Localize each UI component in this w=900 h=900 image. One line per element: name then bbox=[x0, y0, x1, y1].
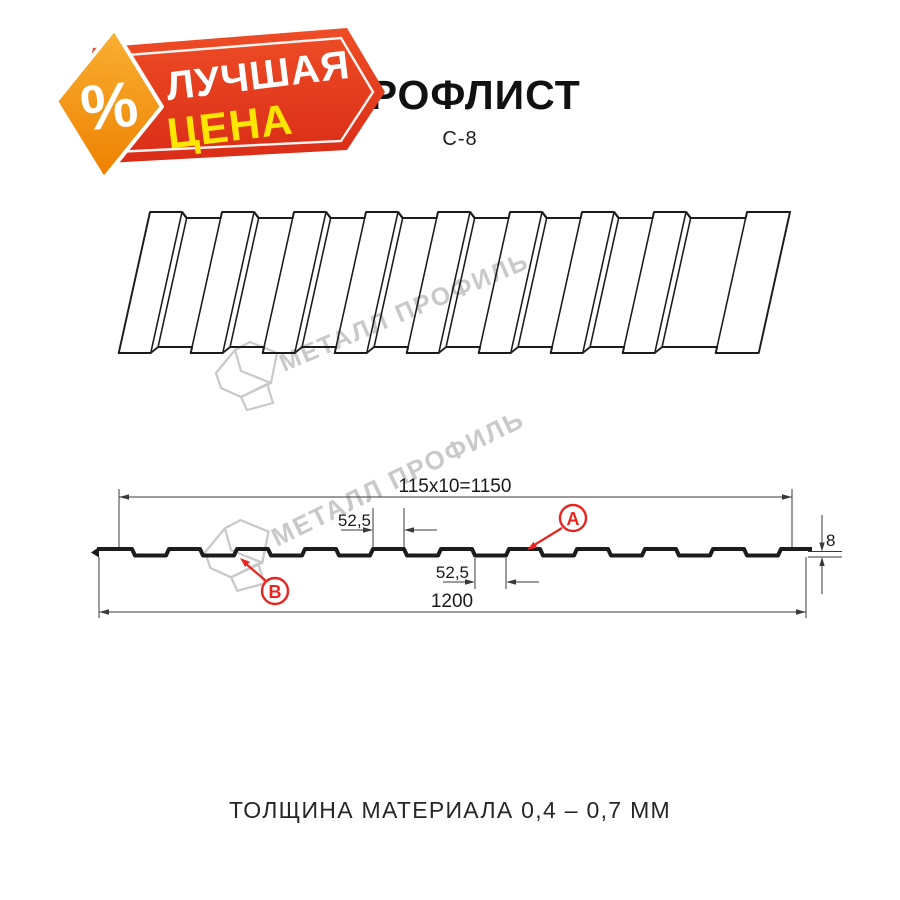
last-rib-line bbox=[716, 212, 747, 353]
best-price-badge: ЛУЧШАЯ ЦЕНА % bbox=[25, 12, 425, 202]
profile-cross-section bbox=[91, 547, 812, 558]
dimension-texts: 115x10=1150 1200 52,5 52,5 8 bbox=[338, 476, 836, 612]
label-b: В bbox=[269, 582, 282, 602]
sheet-left-tip bbox=[91, 547, 99, 558]
dim-valley-width: 52,5 bbox=[436, 563, 469, 582]
watermark-illustration: МЕТАЛЛ ПРОФИЛЬ bbox=[216, 247, 533, 410]
callout-a: А bbox=[527, 505, 586, 550]
profile-sheet-illustration bbox=[119, 212, 790, 353]
label-a: А bbox=[567, 509, 580, 529]
material-thickness-caption: ТОЛЩИНА МАТЕРИАЛА 0,4 – 0,7 ММ bbox=[0, 797, 900, 824]
dim-total-width: 1200 bbox=[431, 591, 473, 612]
dim-height: 8 bbox=[826, 531, 835, 550]
dim-crest-width: 52,5 bbox=[338, 511, 371, 530]
dim-working-width: 115x10=1150 bbox=[399, 476, 512, 497]
percent-icon: % bbox=[77, 67, 141, 145]
